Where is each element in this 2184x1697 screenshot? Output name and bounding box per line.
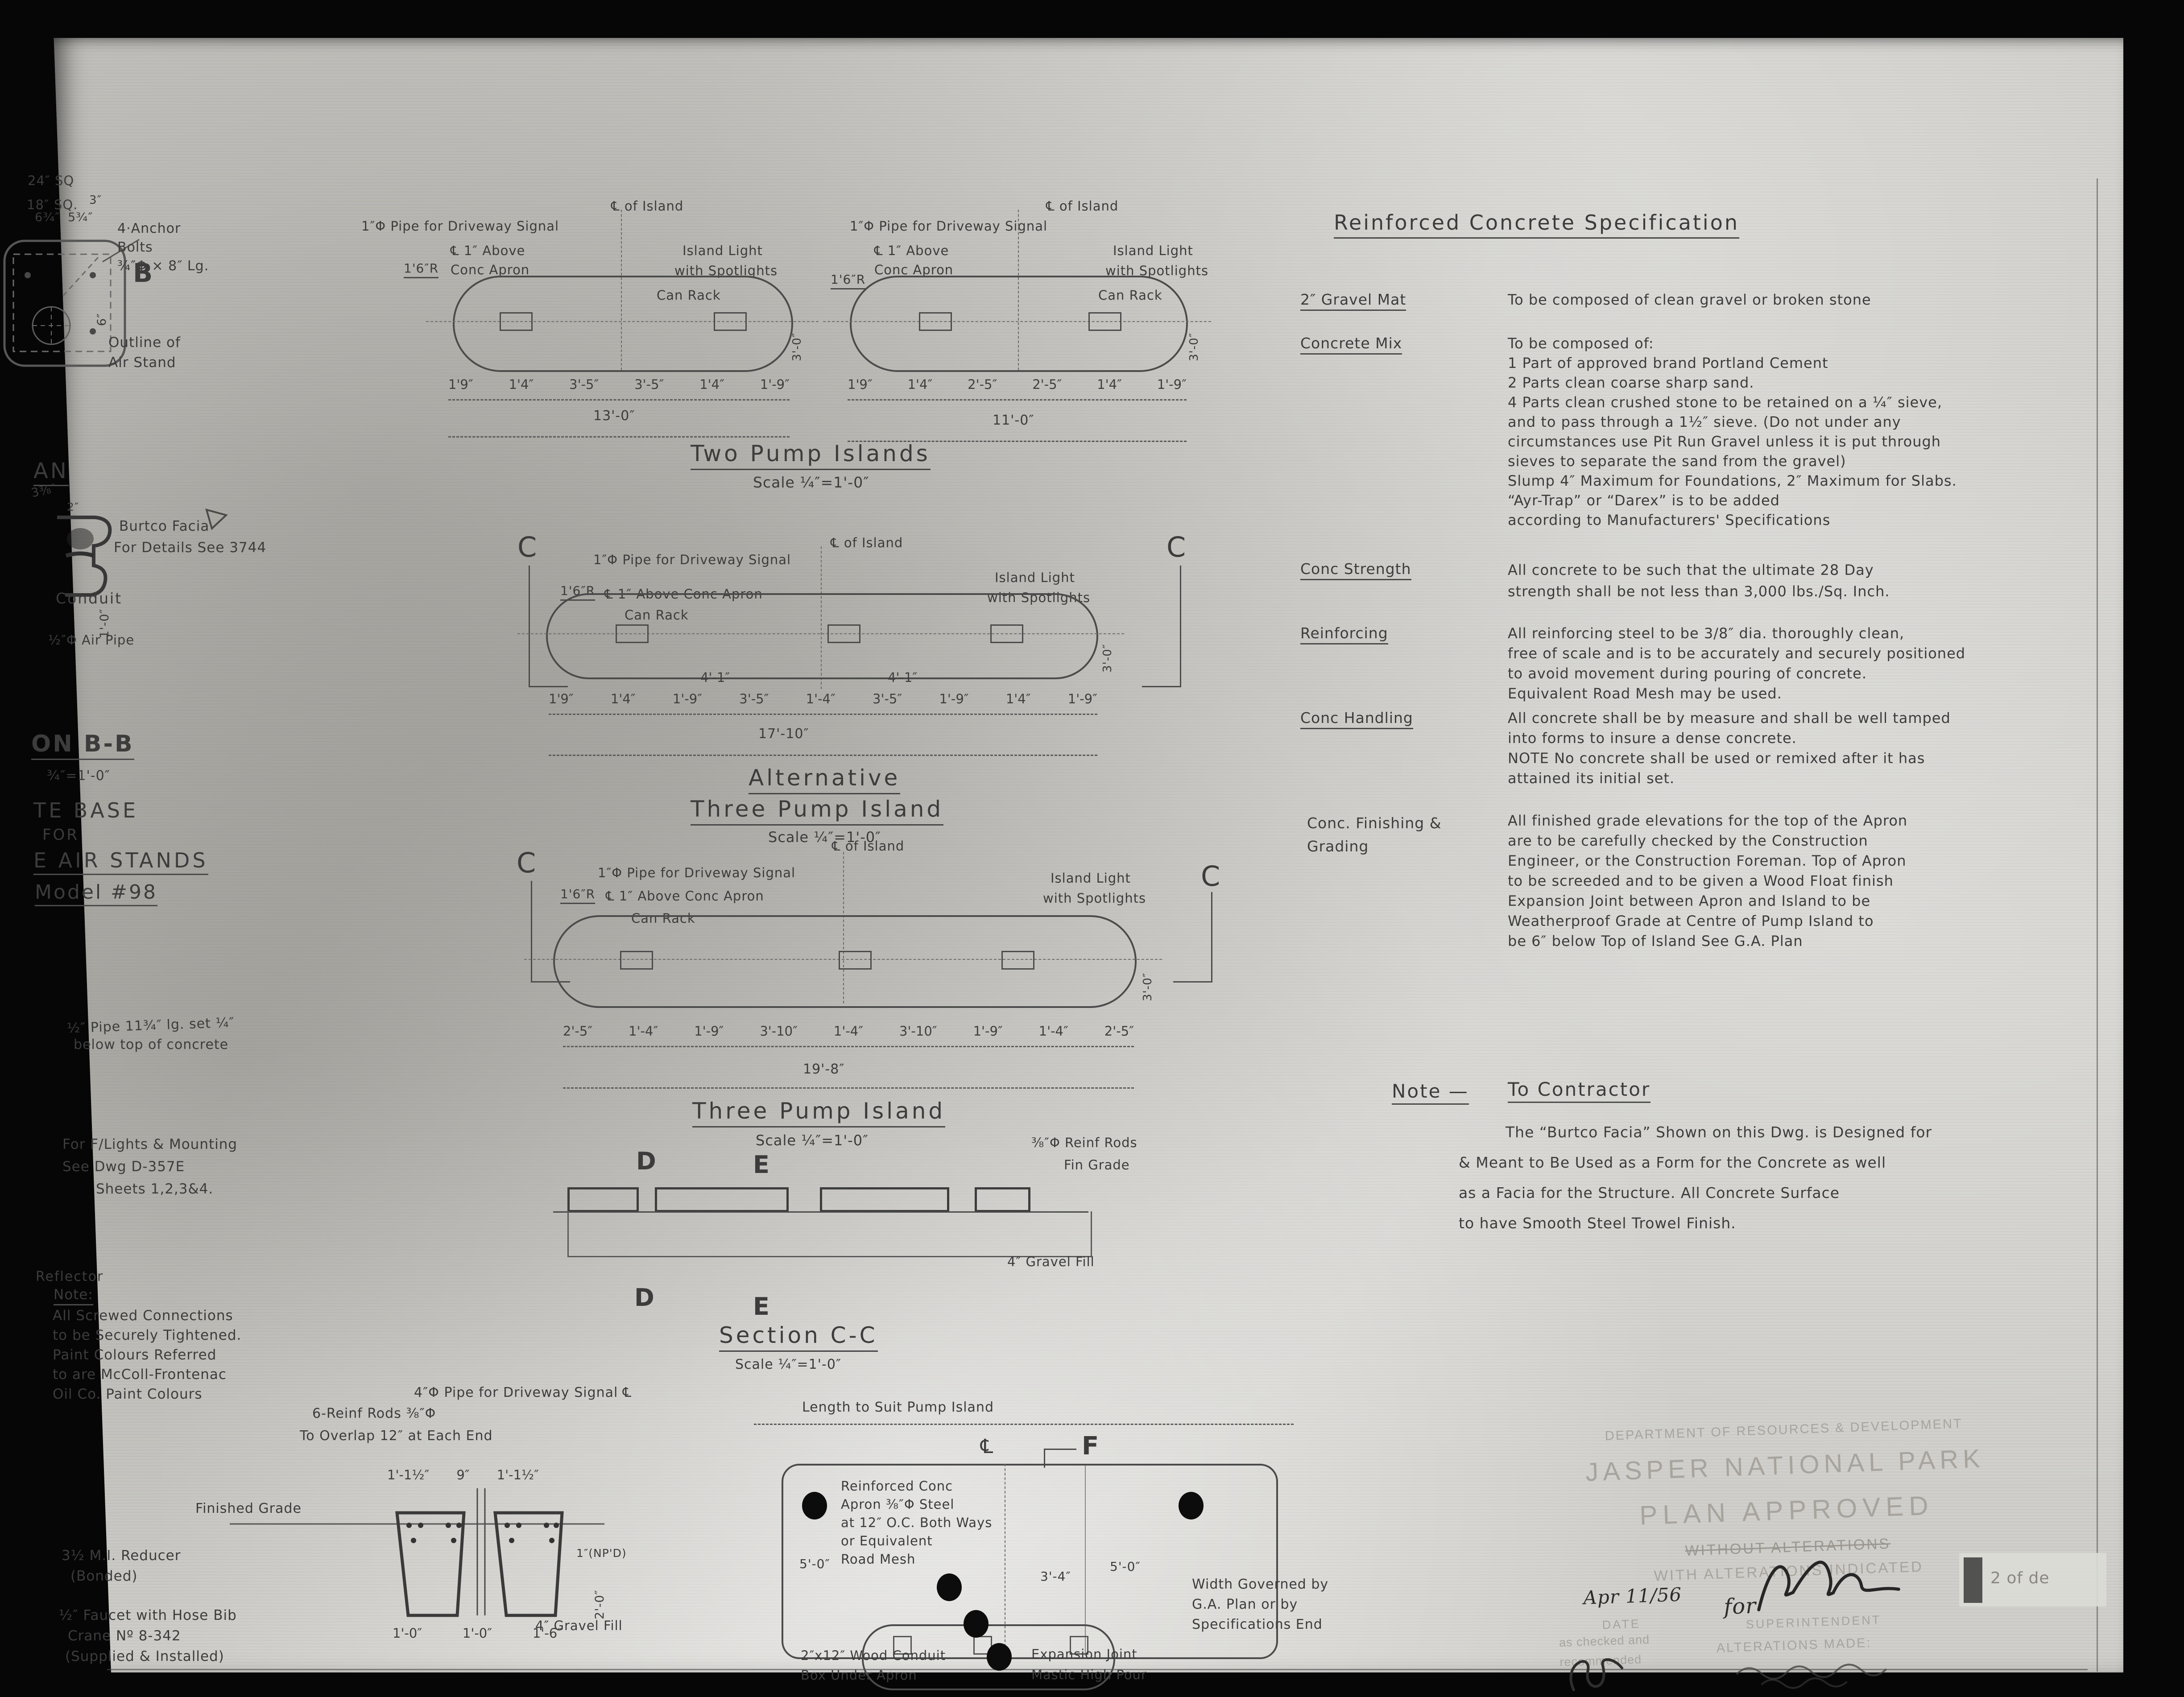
screwed-connections-note-1: to be Securely Tightened. [53,1325,241,1345]
section-bb-scale: ¾″=1'-0″ [47,768,110,784]
three-pump-island-scale: Scale ¼″=1'-0″ [756,1132,869,1149]
three-dim-line [563,1046,1134,1047]
spec-text-conc-finishing-grading-0: All finished grade elevations for the to… [1508,811,1907,831]
island-a-centerline-horizontal [426,321,819,322]
spec-text-concrete-mix-5: circumstances use Pit Run Gravel unless … [1508,432,1957,451]
signal-position-dot-center [937,1573,962,1601]
file-note-text: 2 of de [1990,1569,2050,1587]
spec-text-conc-handling: All concrete shall be by measure and sha… [1508,708,1951,789]
spec-text-conc-strength-1: strength shall be not less than 3,000 lb… [1508,581,1890,602]
island-a-total-line [448,436,790,438]
alt-dim-row-1: 1'4″ [611,691,636,706]
section-cc-title: Section C-C [719,1322,878,1352]
spec-text-concrete-mix-6: sieves to separate the sand from the gra… [1508,451,1957,471]
alt-pipe-label: 1″Φ Pipe for Driveway Signal [593,552,791,567]
wood-conduit-note-0: 2″x12″ Wood Conduit [801,1646,946,1665]
three-dim-row: 2'-5″1'-4″1'-9″3'-10″1'-4″3'-10″1'-9″1'-… [563,1024,1134,1039]
curb-bar-2 [655,1187,789,1212]
spec-text-concrete-mix: To be composed of:1 Part of approved bra… [1508,334,1957,530]
three-can-rack-1 [620,951,653,970]
alt-can-rack-1 [616,624,649,643]
curb-bar-4 [975,1187,1030,1212]
stamp-date-label: DATE [1602,1617,1641,1632]
contractor-note-body: The “Burtco Facia” Shown on this Dwg. is… [1459,1117,1932,1239]
two-pump-apron-label-right-2: Conc Apron [874,262,953,277]
spec-text-conc-strength: All concrete to be such that the ultimat… [1508,559,1890,602]
faucet-label-1: ½″ Faucet with Hose Bib [59,1607,237,1623]
section-e-mark-upper: E [753,1151,770,1179]
section-b-mark: B [133,258,153,288]
two-pump-islands-title: Two Pump Islands [691,441,931,470]
superintendent-signature [1748,1537,1915,1623]
island-b-dim-row-5: 1'-9″ [1157,377,1187,392]
flights-note-2: See Dwg D-357E [62,1159,185,1175]
spec-label-conc-strength: Conc Strength [1300,560,1411,580]
three-dim-row-6: 1'-9″ [973,1024,1003,1039]
alt-title-line-2: Three Pump Island [691,796,943,826]
two-pump-apron-label-left-1: ℄ 1″ Above [451,243,525,258]
two-pump-apron-label-right-1: ℄ 1″ Above [874,243,949,258]
apron-dim-mid: 3'-4″ [1040,1569,1071,1584]
flights-note-1: For F/Lights & Mounting [62,1136,237,1152]
spec-text-concrete-mix-8: “Ayr-Trap” or “Darex” is to be added [1508,491,1957,510]
alt-centerline-horizontal [517,633,1124,634]
island-b-dim-row-1: 1'4″ [908,377,933,392]
spec-text-conc-finishing-grading-1: are to be carefully checked by the Const… [1508,831,1907,851]
island-b-dim-line [848,399,1187,401]
apron-centerline-symbol: ℄ [980,1435,993,1458]
three-section-cut-bracket-right [1173,892,1212,983]
spec-text-conc-finishing-grading-2: Engineer, or the Construction Foreman. T… [1508,851,1907,871]
island-a-dim-row-5: 1'-9″ [760,377,790,392]
signal-foundation-section-drawing [377,1482,604,1633]
spec-text-conc-handling-0: All concrete shall be by measure and sha… [1508,708,1951,728]
three-dim-row-7: 1'-4″ [1039,1024,1068,1039]
section-f-mark: F [1082,1432,1099,1461]
three-pump-island-title: Three Pump Island [692,1098,945,1127]
screwed-connections-note-3: to are McColl-Frontenac [53,1365,241,1384]
scanned-drawing-canvas: 24″ SQ 18″ SQ. 6¾″ 5¾″ 3″ 4·AnchorBolts¾… [0,0,2184,1684]
section-d-mark-lower: D [634,1284,655,1312]
spec-text-conc-strength-0: All concrete to be such that the ultimat… [1508,559,1890,581]
air-stand-dim-534: 5¾″ [68,211,93,224]
expansion-joint-note-0: Expansion Joint [1031,1644,1147,1664]
stamp-date-handwritten: Apr 11/56 [1583,1583,1682,1609]
three-section-c-mark-left: C [517,846,536,879]
island-b-can-rack-left [919,312,952,331]
alt-dim-row-6: 1'-9″ [939,691,968,706]
facia-dim-2: 2″ [67,500,79,513]
two-pump-apron-label-left-2: Conc Apron [451,262,529,277]
faucet-label-2: Crane Nº 8-342 [68,1628,181,1644]
three-dim-row-4: 1'-4″ [834,1024,863,1039]
alt-section-c-mark-left: C [517,531,537,563]
three-dim-row-3: 3'-10″ [760,1024,798,1039]
signal-reinf-label-1: 6-Reinf Rods ⅜″Φ [312,1406,436,1421]
sheet-right-border-line [2097,178,2098,1672]
spec-text-concrete-mix-1: 1 Part of approved brand Portland Cement [1508,353,1957,373]
contractor-note-title: To Contractor [1508,1078,1650,1103]
signal-depth-dim: 2'-0″ [593,1590,607,1619]
burtco-facia-profile-drawing [53,513,115,602]
three-light-label-1: Island Light [1051,871,1131,886]
island-a-dim-row-1: 1'4″ [509,377,534,392]
stamp-checked-line-1: as checked and [1559,1633,1650,1650]
spec-text-conc-finishing-grading: All finished grade elevations for the to… [1508,811,1907,951]
island-b-centerline-horizontal [823,321,1211,322]
road-mesh-note-3: or Equivalent [841,1532,992,1550]
spec-label-conc-handling: Conc Handling [1300,709,1413,729]
anchor-bolts-note-1: Bolts [117,238,209,257]
spec-text-conc-finishing-grading-6: be 6″ below Top of Island See G.A. Plan [1508,931,1907,951]
width-governed-note-2: Specifications End [1192,1614,1328,1635]
width-governed-note-1: G.A. Plan or by [1192,1594,1328,1614]
anchor-bolts-note-0: 4·Anchor [117,219,209,238]
island-b-outline [850,276,1188,372]
spec-text-conc-finishing-grading-3: to be screeded and to be given a Wood Fl… [1508,871,1907,891]
alt-centerline-label: ℄ of Island [831,535,903,550]
alt-light-label-1: Island Light [995,570,1075,585]
stamp-park-line: JASPER NATIONAL PARK [1553,1442,2018,1488]
three-can-rack-2 [839,951,872,970]
spec-text-concrete-mix-9: according to Manufacturers' Specificatio… [1508,510,1957,530]
anchor-bolts-note: 4·AnchorBolts¾″Φ × 8″ Lg. [117,219,209,276]
three-light-label-2: with Spotlights [1043,891,1146,906]
island-a-dim-row-4: 1'4″ [699,377,724,392]
three-width-dim: 3'-0″ [1141,973,1154,1001]
island-b-total-dim: 11'-0″ [993,413,1034,428]
gravel-excavation-outline [567,1211,1092,1257]
road-mesh-note: Reinforced ConcApron ⅜″Φ Steelat 12″ O.C… [841,1477,992,1569]
contractor-note-body-3: to have Smooth Steel Trowel Finish. [1459,1208,1932,1239]
handwritten-initials-flourish [1561,1650,1634,1697]
model-98-label: Model #98 [35,881,157,906]
road-mesh-note-4: Road Mesh [841,1550,992,1569]
signal-pipe-label: 4″Φ Pipe for Driveway Signal ℄ [414,1385,632,1400]
three-section-c-mark-right: C [1201,860,1220,892]
reducer-label-2: (Bonded) [70,1568,138,1584]
width-governed-note-0: Width Governed by [1192,1574,1328,1594]
air-stand-dim-18: 18″ SQ. [27,197,78,212]
finished-grade-label: Finished Grade [195,1501,302,1516]
alt-total-line [549,755,1097,756]
spec-text-concrete-mix-7: Slump 4″ Maximum for Foundations, 2″ Max… [1508,471,1957,491]
road-mesh-note-2: at 12″ O.C. Both Ways [841,1514,992,1532]
spec-text-concrete-mix-3: 4 Parts clean crushed stone to be retain… [1508,392,1957,412]
signal-reinf-label-2: To Overlap 12″ at Each End [300,1428,493,1444]
three-dim-row-8: 2'-5″ [1104,1024,1134,1039]
three-dim-row-5: 3'-10″ [899,1024,937,1039]
spec-text-concrete-mix-2: 2 Parts clean coarse sharp sand. [1508,373,1957,392]
two-pump-light-label-right-1: Island Light [1113,243,1193,258]
alt-can-rack-3 [990,624,1023,643]
signal-npd-dim: 1″(NP'D) [576,1547,627,1560]
expansion-joint-note-1: Mastic High Pour [1031,1664,1147,1685]
three-dim-row-2: 1'-9″ [694,1024,724,1039]
section-bb-title-fragment: ON B-B [31,731,134,760]
signal-position-dot-left [802,1492,827,1519]
alt-dim-row-4: 1'-4″ [806,691,836,706]
alt-dim-row-7: 1'4″ [1006,691,1031,706]
gravel-fill-label: 4″ Gravel Fill [1007,1254,1095,1269]
spec-label-conc-finishing-grading: Conc. Finishing & Grading [1307,812,1463,858]
spec-text-gravel-mat-0: To be composed of clean gravel or broken… [1508,290,1871,310]
signal-bottom-dim-row-1: 1'-0″ [463,1626,492,1641]
island-b-dim-row-4: 1'4″ [1097,377,1122,392]
two-pump-centerline-label-left: ℄ of Island [611,198,683,214]
road-mesh-note-1: Apron ⅜″Φ Steel [841,1495,992,1514]
island-a-dim-row-2: 3'-5″ [569,377,599,392]
file-note-ink-blob [1964,1557,1982,1603]
two-pump-centerline-label-right: ℄ of Island [1046,198,1118,214]
island-b-dim-row-2: 2'-5″ [968,377,997,392]
spec-text-gravel-mat: To be composed of clean gravel or broken… [1508,290,1871,310]
burtco-facia-label-2: For Details See 3744 [114,540,266,556]
curb-bar-1 [567,1187,639,1212]
three-centerline-label: ℄ of Island [832,838,904,854]
island-a-dim-line [448,399,790,401]
spec-heading: Reinforced Concrete Specification [1334,211,1739,239]
screwed-connections-note: All Screwed Connectionsto be Securely Ti… [53,1306,241,1404]
three-total-line [563,1087,1134,1089]
expansion-joint-note: Expansion JointMastic High Pour [1031,1644,1147,1685]
signal-top-dim-row: 1'-1½″9″1'-1½″ [387,1467,539,1482]
island-a-dim-row-3: 3'-5″ [634,377,664,392]
pipe-set-note-2: below top of concrete [74,1037,228,1053]
island-signal-dot-upper [964,1610,989,1638]
conduit-label: Conduit [56,590,122,607]
curb-bar-3 [820,1187,949,1212]
alt-sub-dim-2-wrap: 4'-1″ [888,670,977,685]
screwed-connections-note-0: All Screwed Connections [53,1306,241,1325]
spec-label-gravel-mat: 2″ Gravel Mat [1300,291,1406,311]
jasper-approval-stamp: DEPARTMENT OF RESOURCES & DEVELOPMENT JA… [1551,1407,2024,1690]
island-a-dim-row: 1'9″1'4″3'-5″3'-5″1'4″1'-9″ [448,377,790,392]
island-b-dim-row-3: 2'-5″ [1032,377,1062,392]
reflector-label: Reflector [36,1269,103,1284]
spec-text-reinforcing-3: Equivalent Road Mesh may be used. [1508,684,1965,704]
stamp-alterations-label: ALTERATIONS MADE: [1716,1636,1872,1656]
section-cc-scale: Scale ¼″=1'-0″ [735,1357,841,1372]
island-b-dim-row-0: 1'9″ [848,377,873,392]
outline-of-air-stand-label-2: Air Stand [108,355,176,371]
spec-text-concrete-mix-0: To be composed of: [1508,334,1957,353]
three-apron-label: ℄ 1″ Above Conc Apron [606,888,764,904]
flights-note-3: Sheets 1,2,3&4. [96,1181,213,1197]
island-b-can-rack-right [1088,312,1121,331]
alt-dim-row-8: 1'-9″ [1068,691,1097,706]
three-total-dim: 19'-8″ [803,1061,845,1077]
detail-flag-triangle-icon [203,506,230,533]
island-b-dim-row: 1'9″1'4″2'-5″2'-5″1'4″1'-9″ [848,377,1187,392]
alt-sub-dim-2: 4'-1″ [888,670,917,685]
wood-conduit-note-1: Box Under Apron [801,1665,946,1685]
alt-sub-dim-1-wrap: 4'-1″ [700,670,790,685]
air-stand-dim-6: 6″ [95,313,109,326]
air-stand-dim-24: 24″ SQ [28,173,74,188]
alt-dim-row-2: 1'-9″ [673,691,702,706]
signal-top-dim-row-1: 9″ [456,1467,469,1482]
wood-conduit-note: 2″x12″ Wood ConduitBox Under Apron [801,1646,946,1685]
two-pump-islands-scale: Scale ¼″=1'-0″ [753,474,869,491]
air-pipe-label: ½″Φ Air Pipe [48,632,134,648]
island-a-can-rack-right [714,312,747,331]
spec-text-conc-handling-1: into forms to insure a dense concrete. [1508,728,1951,748]
two-pump-light-label-left-1: Island Light [682,243,763,258]
concrete-base-title-fragment-1: TE BASE [33,798,138,822]
spec-text-reinforcing-0: All reinforcing steel to be 3/8″ dia. th… [1508,623,1965,644]
three-radius-label: 1'6″R [560,887,595,904]
screwed-connections-note-4: Oil Co. Paint Colours [53,1384,241,1404]
island-a-total-dim: 13'-0″ [593,408,635,424]
road-mesh-note-0: Reinforced Conc [841,1477,992,1495]
two-pump-radius-label-right: 1'6″R [831,272,865,289]
island-signal-dot-lower [987,1643,1012,1671]
signal-bottom-dim-row-0: 1'-0″ [393,1626,422,1641]
alt-width-dim: 3'-0″ [1101,644,1114,673]
spec-label-concrete-mix: Concrete Mix [1300,334,1402,355]
faucet-label-3: (Supplied & Installed) [65,1648,224,1664]
facia-dim-1ft: 1'-0″ [98,608,112,638]
spec-text-reinforcing-1: free of scale and is to be accurately an… [1508,644,1965,664]
signal-top-dim-row-0: 1'-1½″ [387,1467,429,1482]
two-pump-pipe-label-left: 1″Φ Pipe for Driveway Signal [361,219,559,234]
section-d-mark-upper: D [636,1147,657,1175]
contractor-note-label: Note — [1392,1080,1469,1105]
contractor-note-body-1: & Meant to Be Used as a Form for the Con… [1459,1148,1932,1178]
alt-dim-row-5: 3'-5″ [873,691,902,706]
stamp-plan-approved-line: PLAN APPROVED [1554,1487,2019,1534]
alt-dim-row-3: 3'-5″ [739,691,769,706]
anchor-bolts-note-2: ¾″Φ × 8″ Lg. [117,257,209,276]
apron-length-dim-line [754,1424,1294,1425]
three-pipe-label: 1″Φ Pipe for Driveway Signal [598,865,795,880]
spec-text-conc-handling-3: attained its initial set. [1508,768,1951,789]
screwed-connections-note-2: Paint Colours Referred [53,1345,241,1365]
air-stand-dim-634: 6¾″ [35,211,60,224]
three-dim-row-0: 2'-5″ [563,1024,592,1039]
spec-text-conc-handling-2: NOTE No concrete shall be used or remixe… [1508,748,1951,768]
reinf-rods-label: ⅜″Φ Reinf Rods [1031,1135,1137,1150]
contractor-note-body-2: as a Facia for the Structure. All Concre… [1459,1178,1932,1208]
signal-position-dot-right [1179,1492,1204,1519]
alt-dim-row-0: 1'9″ [549,691,574,706]
island-a-dim-row-0: 1'9″ [448,377,473,392]
alterations-handwritten-note [1734,1654,1931,1688]
reducer-label-1: 3½ M.I. Reducer [62,1548,181,1564]
alt-dim-row: 1'9″1'4″1'-9″3'-5″1'-4″3'-5″1'-9″1'4″1'-… [549,691,1097,706]
spec-text-reinforcing: All reinforcing steel to be 3/8″ dia. th… [1508,623,1965,704]
section-e-mark-lower: E [753,1292,770,1321]
alt-sub-dim-1: 4'-1″ [700,670,730,685]
concrete-base-title-fragment-2: FOR [42,826,79,844]
spec-text-reinforcing-2: to avoid movement during pouring of conc… [1508,664,1965,684]
signal-top-dim-row-2: 1'-1½″ [497,1467,539,1482]
apron-dim-left: 5'-0″ [799,1557,830,1571]
contractor-note-body-0: The “Burtco Facia” Shown on this Dwg. is… [1459,1117,1932,1148]
outline-of-air-stand-label-1: Outline of [108,334,181,351]
two-pump-radius-label-left: 1'6″R [404,261,438,278]
signal-gravel-label: 4″ Gravel Fill [535,1618,623,1633]
island-b-width-dim: 3'-0″ [1187,333,1201,361]
alt-can-rack-2 [827,624,860,643]
length-to-suit-label: Length to Suit Pump Island [802,1400,994,1415]
alt-section-cut-bracket-right [1142,566,1181,687]
spec-text-concrete-mix-4: and to pass through a 1½″ sieve. (Do not… [1508,412,1957,432]
spec-text-conc-finishing-grading-5: Weatherproof Grade at Centre of Pump Isl… [1508,911,1907,931]
alt-total-dim: 17'-10″ [758,726,809,742]
concrete-base-title-fragment-3: E AIR STANDS [33,848,208,875]
fin-grade-label: Fin Grade [1064,1157,1130,1173]
island-a-width-dim: 3'-0″ [790,333,804,361]
island-a-can-rack-left [500,312,533,331]
air-stand-dim-3: 3″ [89,194,102,207]
apron-dim-right: 5'-0″ [1110,1559,1141,1574]
three-can-rack-3 [1001,951,1034,970]
alt-section-c-mark-right: C [1166,531,1186,563]
screwed-connections-note-label: Note: [54,1287,93,1305]
alt-dim-line [549,714,1097,715]
width-governed-note: Width Governed byG.A. Plan or bySpecific… [1192,1574,1328,1635]
spec-text-conc-finishing-grading-4: Expansion Joint between Apron and Island… [1508,891,1907,911]
three-dim-row-1: 1'-4″ [629,1024,658,1039]
alt-title-line-1: Alternative [749,765,900,794]
burtco-facia-label-1: Burtco Facia [119,518,209,534]
spec-label-reinforcing: Reinforcing [1300,624,1388,644]
